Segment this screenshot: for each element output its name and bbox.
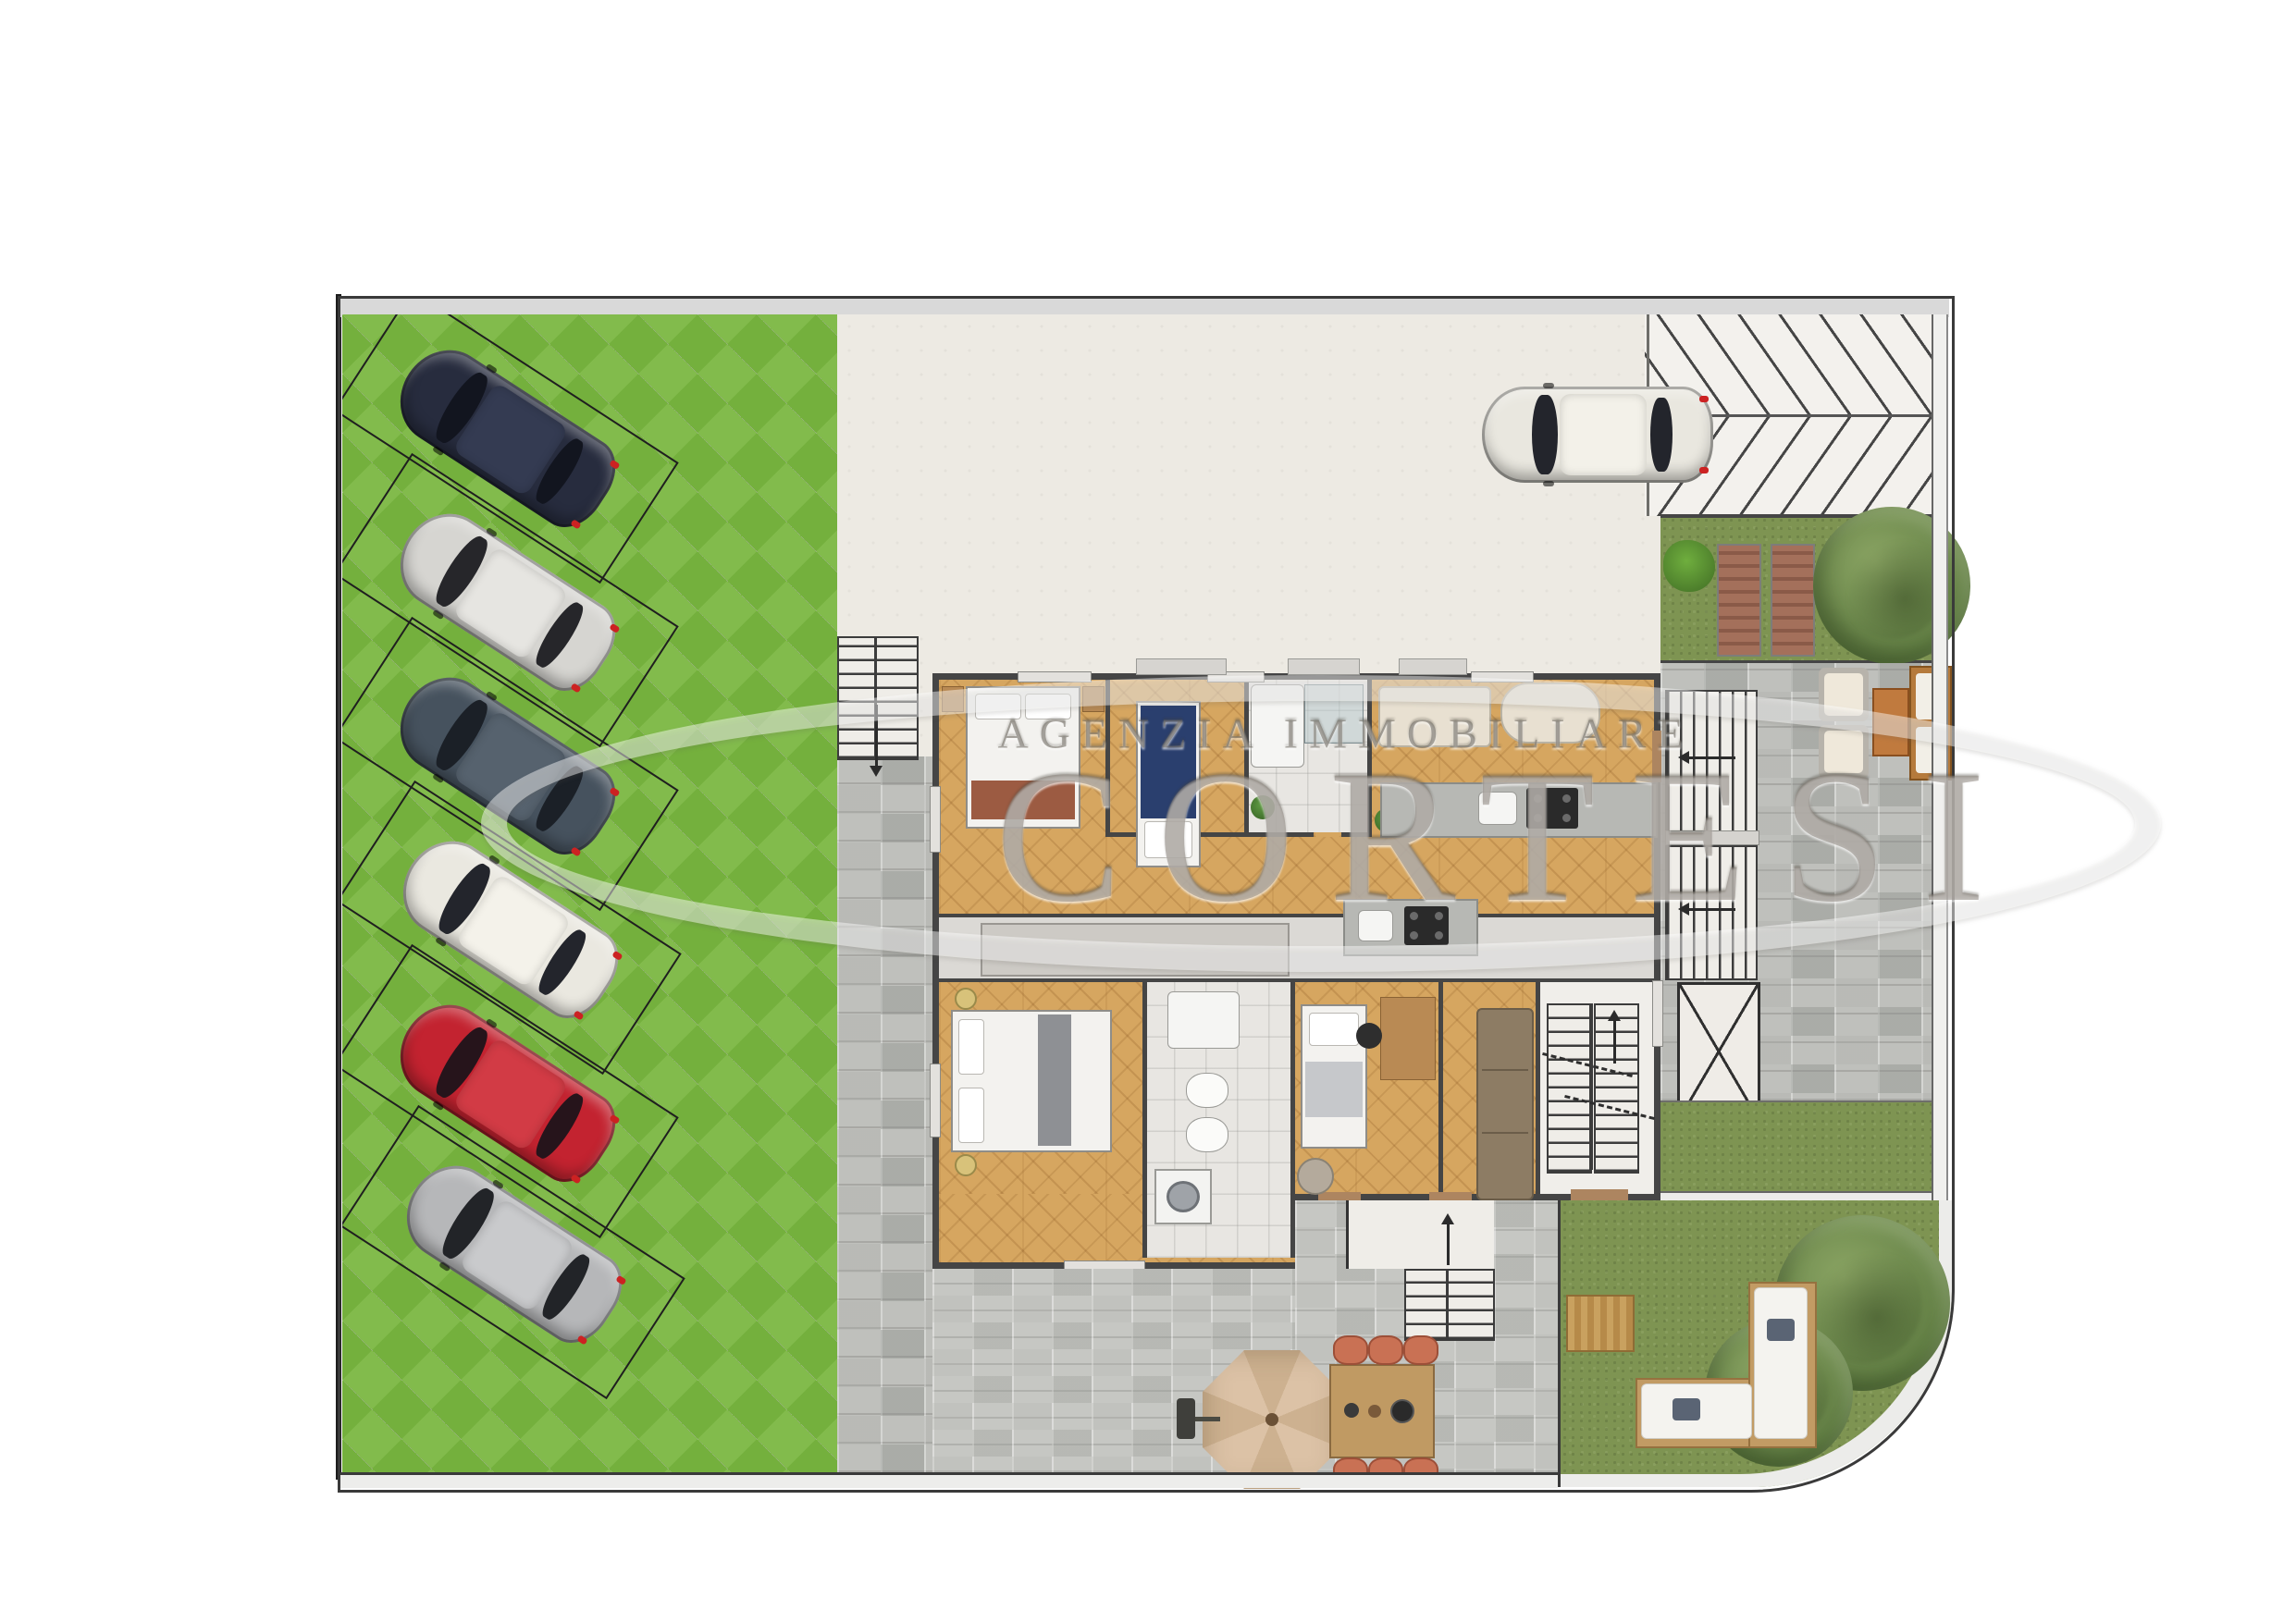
patio-steps-up-arrow bbox=[1447, 1217, 1450, 1265]
parking-court bbox=[342, 314, 837, 1472]
site-plan-canvas: AGENZIA IMMOBILIARE CORTESI bbox=[0, 0, 2296, 1623]
corridor-wall-top bbox=[939, 914, 1654, 917]
private-lawn bbox=[1558, 1200, 1952, 1487]
terrace-lawn-divider bbox=[1660, 1100, 1932, 1102]
entry-canopy bbox=[1399, 658, 1467, 675]
car-white-city-courtyard bbox=[1482, 387, 1713, 483]
wall-bath-right bbox=[1367, 680, 1372, 837]
window bbox=[1652, 980, 1663, 1047]
dining-chair bbox=[1333, 1335, 1368, 1365]
dining-chair bbox=[1368, 1335, 1403, 1365]
wall-stair-hall bbox=[1536, 982, 1540, 1194]
sofa-pillow bbox=[1767, 1319, 1795, 1341]
stair-up-arrow bbox=[1613, 1014, 1616, 1064]
side-stone-path bbox=[837, 756, 932, 1472]
terrace-coffee-table bbox=[1872, 688, 1909, 756]
stair-direction-arrow bbox=[1682, 756, 1735, 759]
window bbox=[1471, 671, 1534, 682]
sun-lounger bbox=[1771, 544, 1815, 657]
nightstand bbox=[942, 686, 964, 712]
bidet bbox=[1186, 1117, 1228, 1152]
kitchenette-sink bbox=[1358, 910, 1393, 941]
pouf bbox=[1297, 1158, 1334, 1195]
window bbox=[930, 1064, 941, 1137]
single-bed bbox=[1301, 1004, 1367, 1149]
side-stair bbox=[837, 636, 919, 760]
kitchen-sink bbox=[1478, 792, 1517, 825]
kitchenette-cooktop bbox=[1404, 906, 1449, 945]
window bbox=[930, 786, 941, 853]
double-bed bbox=[951, 1010, 1112, 1152]
washing-machine bbox=[1154, 1169, 1212, 1224]
dining-table-oval bbox=[1500, 682, 1600, 744]
cooktop bbox=[1526, 788, 1578, 829]
patio-steps bbox=[1404, 1269, 1495, 1341]
dining-chair bbox=[1403, 1335, 1438, 1365]
sofa-pillow bbox=[1673, 1398, 1700, 1420]
side-stair-down-arrow bbox=[875, 705, 878, 773]
internal-stair-flight bbox=[1594, 1003, 1639, 1174]
plant bbox=[1251, 795, 1275, 819]
entry-door-threshold bbox=[1571, 1189, 1628, 1200]
corridor-wall-bottom bbox=[939, 978, 1654, 982]
patio-steps-rail bbox=[1446, 1269, 1449, 1337]
building-wall-left bbox=[932, 673, 939, 1269]
stair-divider bbox=[1665, 830, 1759, 845]
garden-bush bbox=[1663, 540, 1715, 592]
double-bed bbox=[966, 686, 1080, 829]
outdoor-dining-table bbox=[1329, 1364, 1435, 1458]
wall-bedroom1 bbox=[1105, 680, 1110, 837]
door-threshold bbox=[1652, 731, 1661, 782]
sun-lounger bbox=[1717, 544, 1761, 657]
outdoor-l-sofa bbox=[1636, 1282, 1813, 1445]
living-room-sofa bbox=[1476, 1008, 1534, 1200]
wall-lower-bath-left bbox=[1142, 982, 1147, 1258]
upper-living-sofa bbox=[1378, 686, 1491, 747]
site-left-boundary bbox=[336, 294, 341, 1480]
entrance-courtyard bbox=[837, 314, 1660, 675]
shower bbox=[1304, 684, 1364, 744]
desk bbox=[1380, 997, 1436, 1080]
parasol-base bbox=[1177, 1398, 1195, 1439]
stair-center-rail bbox=[1589, 1003, 1593, 1170]
parasol-umbrella bbox=[1203, 1350, 1341, 1489]
corridor-wardrobe bbox=[981, 923, 1290, 977]
kitchen-counter bbox=[1380, 782, 1658, 838]
internal-stair-flight bbox=[1547, 1003, 1592, 1174]
desk-chair bbox=[1356, 1023, 1382, 1049]
toilet bbox=[1186, 1073, 1228, 1108]
stair-direction-arrow bbox=[1682, 908, 1735, 911]
single-bed bbox=[1136, 701, 1201, 867]
nightstand bbox=[1082, 686, 1105, 712]
entry-canopy bbox=[1288, 658, 1360, 675]
door-gap bbox=[1314, 832, 1341, 837]
bathroom-vanity bbox=[1251, 684, 1304, 768]
wall-bedroom4-living bbox=[1438, 982, 1443, 1194]
entry-canopy bbox=[1136, 658, 1227, 675]
terrace-armchair bbox=[1819, 668, 1869, 721]
bathroom-sink-counter bbox=[1167, 991, 1240, 1049]
patio-landing bbox=[1346, 1200, 1494, 1269]
bottom-path bbox=[340, 1472, 1558, 1488]
window bbox=[1018, 671, 1092, 682]
terrace-armchair bbox=[1819, 725, 1869, 779]
bedside-lamp bbox=[955, 988, 977, 1010]
bedside-lamp bbox=[955, 1154, 977, 1176]
right-lawn-strip bbox=[1660, 1100, 1932, 1191]
right-path bbox=[1932, 314, 1948, 1200]
lawn-coffee-table bbox=[1566, 1295, 1635, 1352]
wall-bath-left bbox=[1244, 680, 1249, 837]
